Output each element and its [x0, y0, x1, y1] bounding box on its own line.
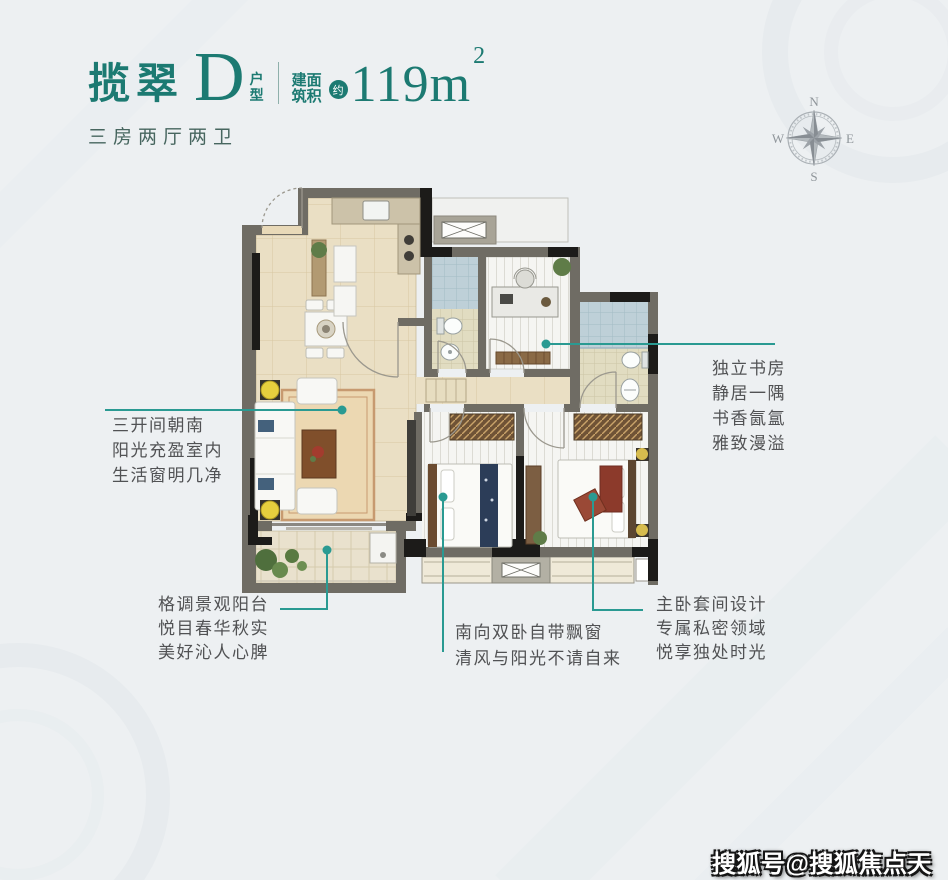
callout-dot-study	[542, 340, 551, 349]
callout-dot-master	[589, 493, 598, 502]
hallway-closet	[426, 379, 466, 402]
compass-w: W	[772, 131, 785, 146]
header-divider	[278, 62, 279, 104]
bay-windows	[422, 557, 650, 583]
area-label-bottom: 筑积	[292, 89, 322, 105]
callout-line-text: 南向双卧自带飘窗	[455, 620, 622, 646]
callout-dot-living	[338, 406, 347, 415]
approx-badge: 约	[329, 80, 348, 99]
toilet	[444, 318, 462, 334]
ac-platform	[432, 198, 568, 244]
subtitle: 三房两厅两卫	[88, 122, 484, 149]
master-bath-shower	[580, 302, 648, 348]
area-label: 建面 筑积	[292, 73, 322, 105]
floorplan-page: 揽翠 D 户 型 建面 筑积 约 119m2 三房两厅两卫	[0, 0, 948, 880]
unit-type-label: 户 型	[250, 73, 264, 105]
project-name: 揽翠	[88, 64, 184, 106]
callout-line-text: 阳光充盈室内	[112, 438, 223, 463]
cooktop-burner	[404, 251, 414, 261]
callout-line-text: 独立书房	[712, 356, 786, 381]
callout-line-text: 三开间朝南	[112, 413, 223, 438]
callout-south-bedrooms-text: 南向双卧自带飘窗 清风与阳光不请自来	[455, 620, 622, 672]
unit-label-bottom: 型	[250, 89, 264, 105]
wardrobe	[450, 414, 514, 440]
toilet	[622, 352, 640, 368]
wardrobe	[574, 414, 642, 440]
callout-living-text: 三开间朝南 阳光充盈室内 生活窗明几净	[112, 413, 223, 488]
armchair	[297, 488, 337, 514]
callout-line-text: 主卧套间设计	[656, 593, 767, 617]
plant	[533, 531, 547, 545]
header: 揽翠 D 户 型 建面 筑积 约 119m2 三房两厅两卫	[88, 50, 484, 149]
compass-n: N	[809, 94, 819, 109]
callout-study-text: 独立书房 静居一隅 书香氤氲 雅致漫溢	[712, 356, 786, 456]
callout-dot-balcony	[323, 546, 332, 555]
unit-label-top: 户	[250, 73, 264, 89]
callout-line-text: 生活窗明几净	[112, 463, 223, 488]
callout-line-text: 专属私密领域	[656, 617, 767, 641]
cooktop-burner	[404, 235, 414, 245]
callout-line-text: 清风与阳光不请自来	[455, 646, 622, 672]
callout-line-text: 美好沁人心脾	[158, 641, 269, 665]
watermark: 搜狐号@搜狐焦点天门站	[712, 844, 948, 880]
callout-line-text: 雅致漫溢	[712, 431, 786, 456]
callout-line-text: 书香氤氲	[712, 406, 786, 431]
tv-console	[407, 420, 416, 516]
area-exponent: 2	[473, 43, 486, 69]
callout-line-text: 悦享独处时光	[656, 641, 767, 665]
desk-chair	[516, 270, 534, 288]
callout-line-text: 静居一隅	[712, 381, 786, 406]
area-value: 119m2	[351, 65, 485, 106]
sofa	[255, 402, 295, 510]
laundry-cabinet	[370, 533, 396, 563]
balcony-slider-door	[272, 523, 386, 530]
area-label-top: 建面	[292, 73, 322, 89]
compass-s: S	[810, 169, 817, 184]
callout-dot-south-bedrooms	[439, 493, 448, 502]
callout-master-suite-text: 主卧套间设计 专属私密领域 悦享独处时光	[656, 593, 767, 665]
callout-line-text: 格调景观阳台	[158, 593, 269, 617]
armchair	[297, 378, 337, 404]
plant	[311, 242, 327, 258]
kitchen-sink	[363, 201, 389, 220]
callout-balcony-text: 格调景观阳台 悦目春华秋实 美好沁人心脾	[158, 593, 269, 665]
callout-line-text: 悦目春华秋实	[158, 617, 269, 641]
compass-e: E	[846, 131, 854, 146]
unit-letter: D	[194, 50, 245, 106]
plant	[553, 258, 571, 276]
title-row: 揽翠 D 户 型 建面 筑积 约 119m2	[88, 50, 484, 106]
kitchen-island	[334, 246, 356, 282]
compass-icon: N E S W	[772, 94, 854, 184]
guest-bath-shower	[432, 257, 478, 309]
